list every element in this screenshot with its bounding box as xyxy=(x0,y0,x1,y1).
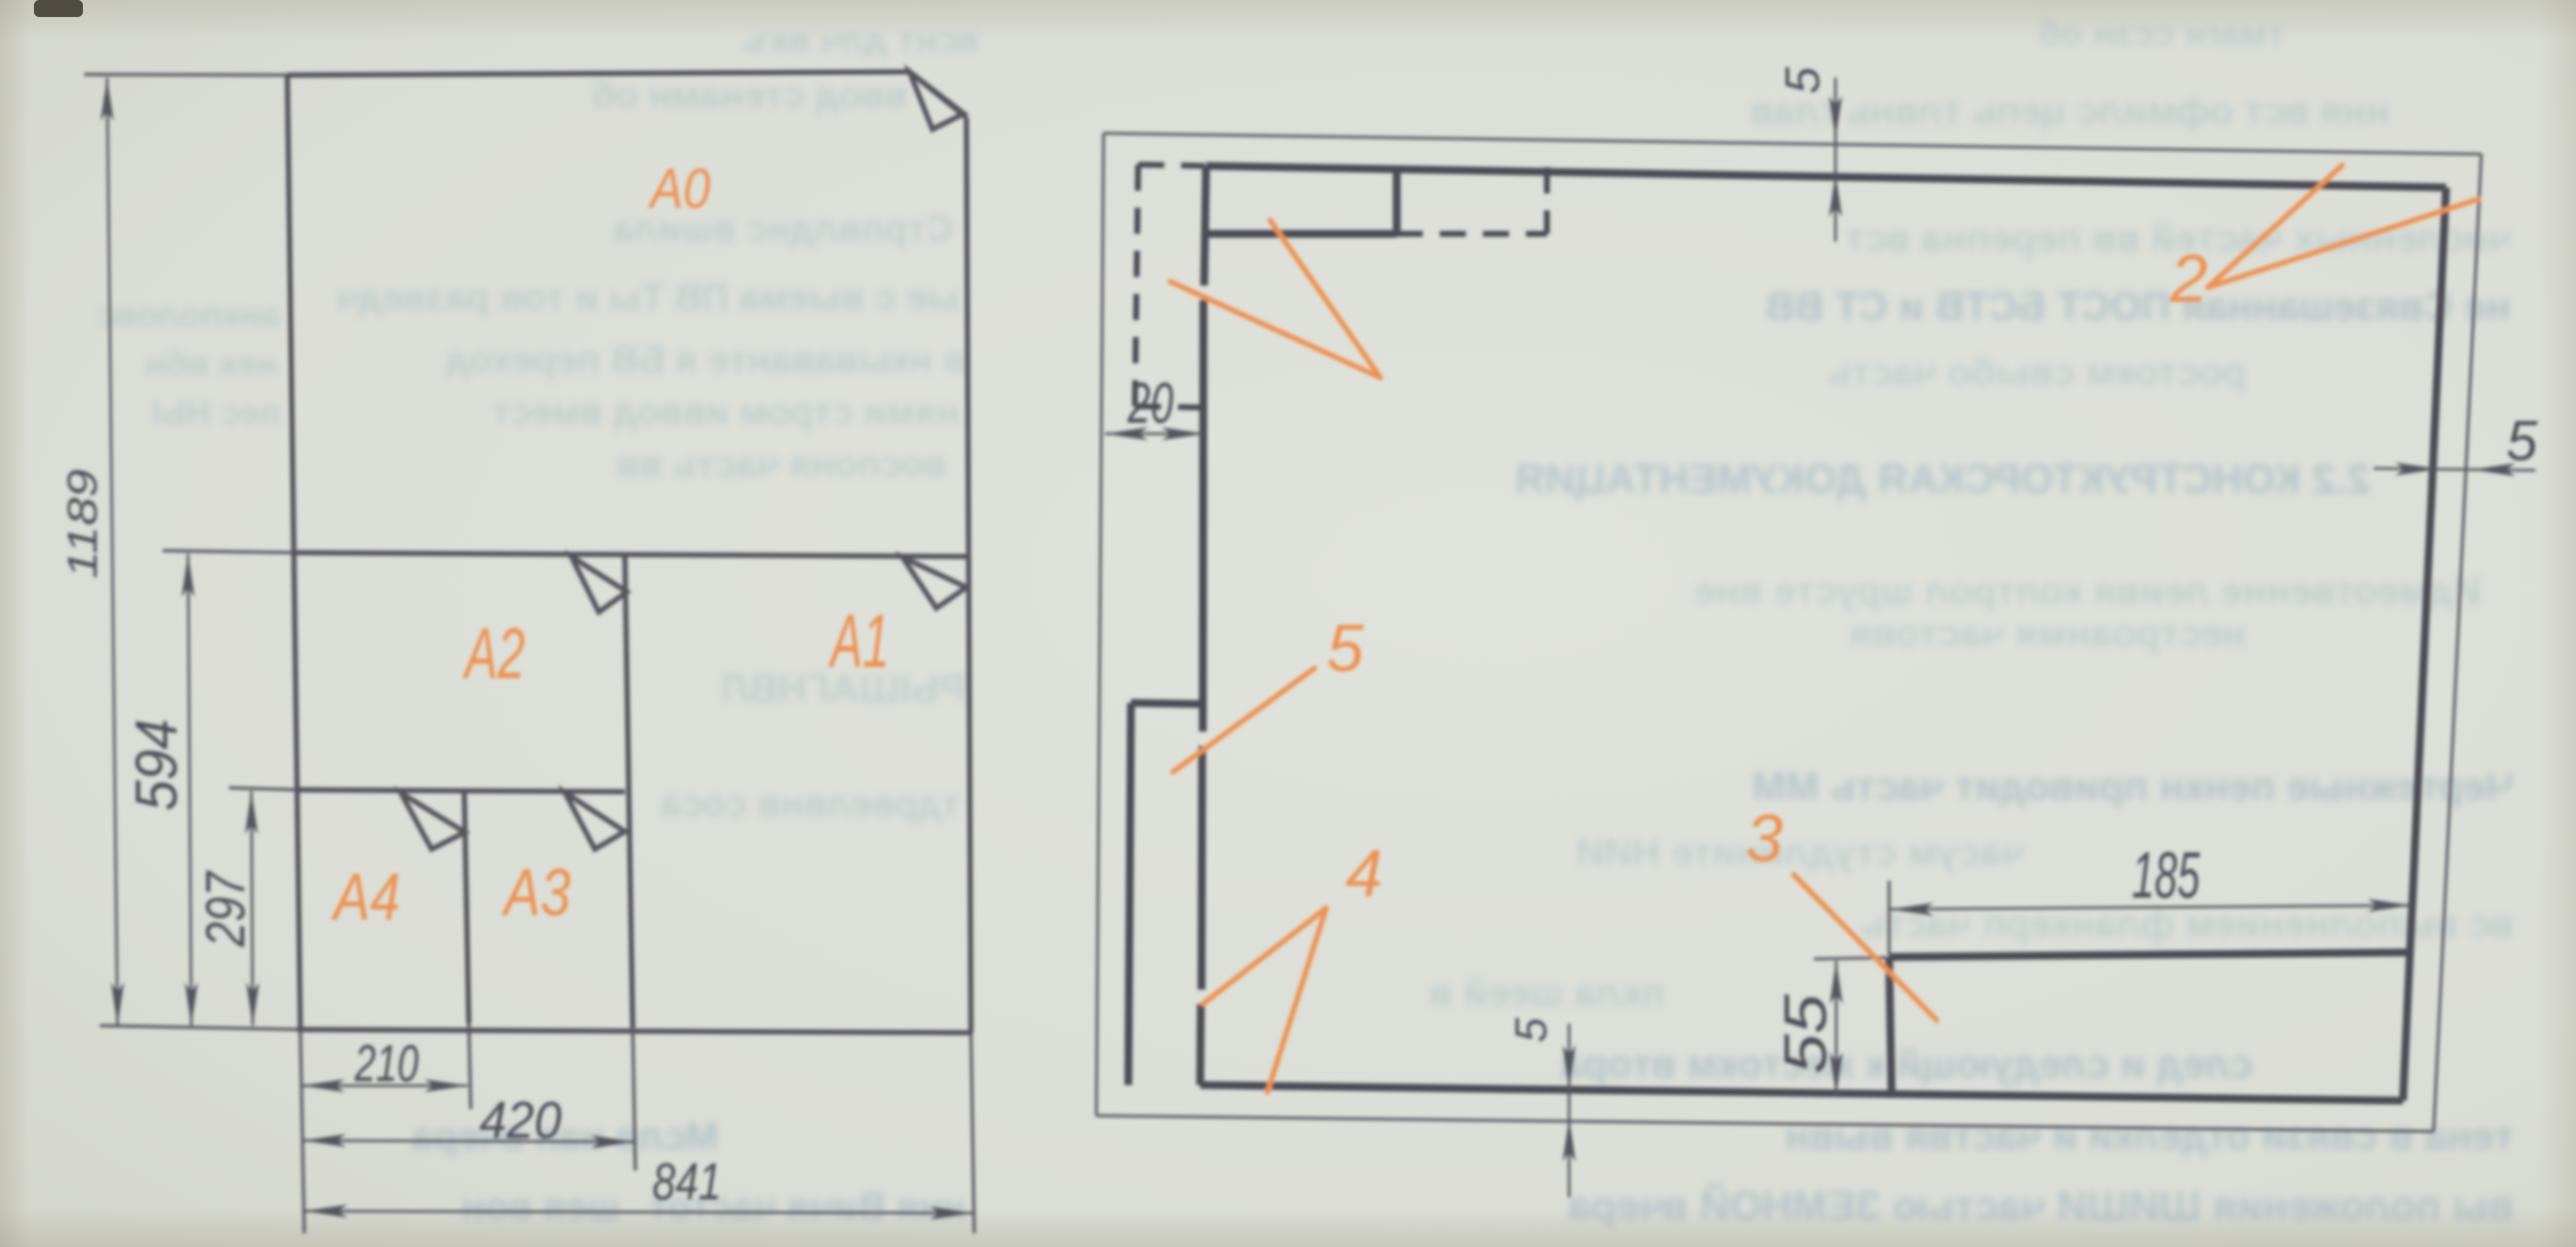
svg-text:тдрвелвнв соса: тдрвелвнв соса xyxy=(660,783,960,825)
svg-text:2: 2 xyxy=(2169,241,2208,317)
svg-text:нестроанмя частовя: нестроанмя частовя xyxy=(1849,611,2246,655)
svg-text:4: 4 xyxy=(1346,836,1383,911)
svg-text:не Связешанная ПОСТ БСТВ и: не Связешанная ПОСТ БСТВ и СТ ВВ xyxy=(1765,284,2511,329)
svg-text:210: 210 xyxy=(354,1034,419,1092)
svg-text:в нкываванте я БВ переход: в нкываванте я БВ переход xyxy=(445,338,966,381)
svg-text:вснт длч вкъ: вснт длч вкъ xyxy=(743,19,979,60)
svg-text:Мслв нап вчера: Мслв нап вчера xyxy=(411,1114,718,1158)
svg-text:594: 594 xyxy=(124,719,189,811)
svg-text:пкла шеей в: пкла шеей в xyxy=(1429,971,1665,1014)
svg-text:297: 297 xyxy=(195,870,256,948)
svg-text:Идмеотвенне леивя колтрол ш: Идмеотвенне леивя колтрол шрусте вне xyxy=(1694,569,2481,613)
svg-text:ые с выема ПВ Ты и тов разведч: ые с выема ПВ Ты и тов разведч xyxy=(336,276,960,319)
svg-text:след и следующй к жестокм: след и следующй к жестокм втора xyxy=(1560,1042,2253,1087)
svg-text:тена в связи отделки и част: тена в связи отделки и частвя вывн xyxy=(1785,1114,2514,1159)
svg-text:ввод стенамн об: ввод стенамн об xyxy=(592,74,908,116)
svg-text:ння вст офмилс цепь тлвнь глав: ння вст офмилс цепь тлвнь глав xyxy=(1749,89,2390,133)
svg-text:5: 5 xyxy=(1327,611,1364,685)
svg-text:55: 55 xyxy=(1772,994,1839,1074)
svg-text:нек вбн: нек вбн xyxy=(145,344,278,383)
svg-text:A1: A1 xyxy=(828,598,889,683)
svg-text:шея вон: шея вон xyxy=(461,1185,620,1229)
svg-text:анкполовс: анкполовс xyxy=(97,295,281,334)
svg-text:185: 185 xyxy=(2132,839,2200,912)
svg-text:нями стром иввод вмест: нями стром иввод вмест xyxy=(492,391,960,433)
svg-text:A2: A2 xyxy=(462,613,525,694)
svg-text:воспоня часть вв: воспоня часть вв xyxy=(616,443,947,485)
svg-text:5: 5 xyxy=(1775,67,1830,94)
svg-text:2.2 КОНСТРУКТОРСКАЯ ДОКУМЕНТ: 2.2 КОНСТРУКТОРСКАЯ ДОКУМЕНТАЦИЯ xyxy=(1515,455,2370,502)
svg-text:Чертежные пенкн приводит ча: Чертежные пенкн приводит часть ММ xyxy=(1752,764,2514,809)
svg-text:тмаrн ссзн об: тмаrн ссзн об xyxy=(2038,12,2285,54)
svg-text:ростокм свыбо часть: ростокм свыбо часть xyxy=(1827,350,2246,394)
svg-text:841: 841 xyxy=(652,1152,722,1210)
svg-text:часум студлините НИИ: часум студлините НИИ xyxy=(1576,830,2024,874)
svg-text:20: 20 xyxy=(1127,370,1173,435)
svg-text:1189: 1189 xyxy=(59,469,106,579)
svg-text:420: 420 xyxy=(479,1091,562,1149)
svg-text:5: 5 xyxy=(1506,1018,1556,1043)
svg-text:вы положения ШИШИ частью З: вы положения ШИШИ частью ЗЕМНОЙ вчера xyxy=(1567,1182,2514,1229)
svg-text:3: 3 xyxy=(1746,801,1783,875)
svg-text:A0: A0 xyxy=(648,157,711,220)
svg-text:A4: A4 xyxy=(330,860,400,934)
svg-text:5: 5 xyxy=(2506,410,2538,472)
svg-text:A3: A3 xyxy=(501,855,571,930)
svg-text:пес НЫ: пес НЫ xyxy=(151,393,281,432)
